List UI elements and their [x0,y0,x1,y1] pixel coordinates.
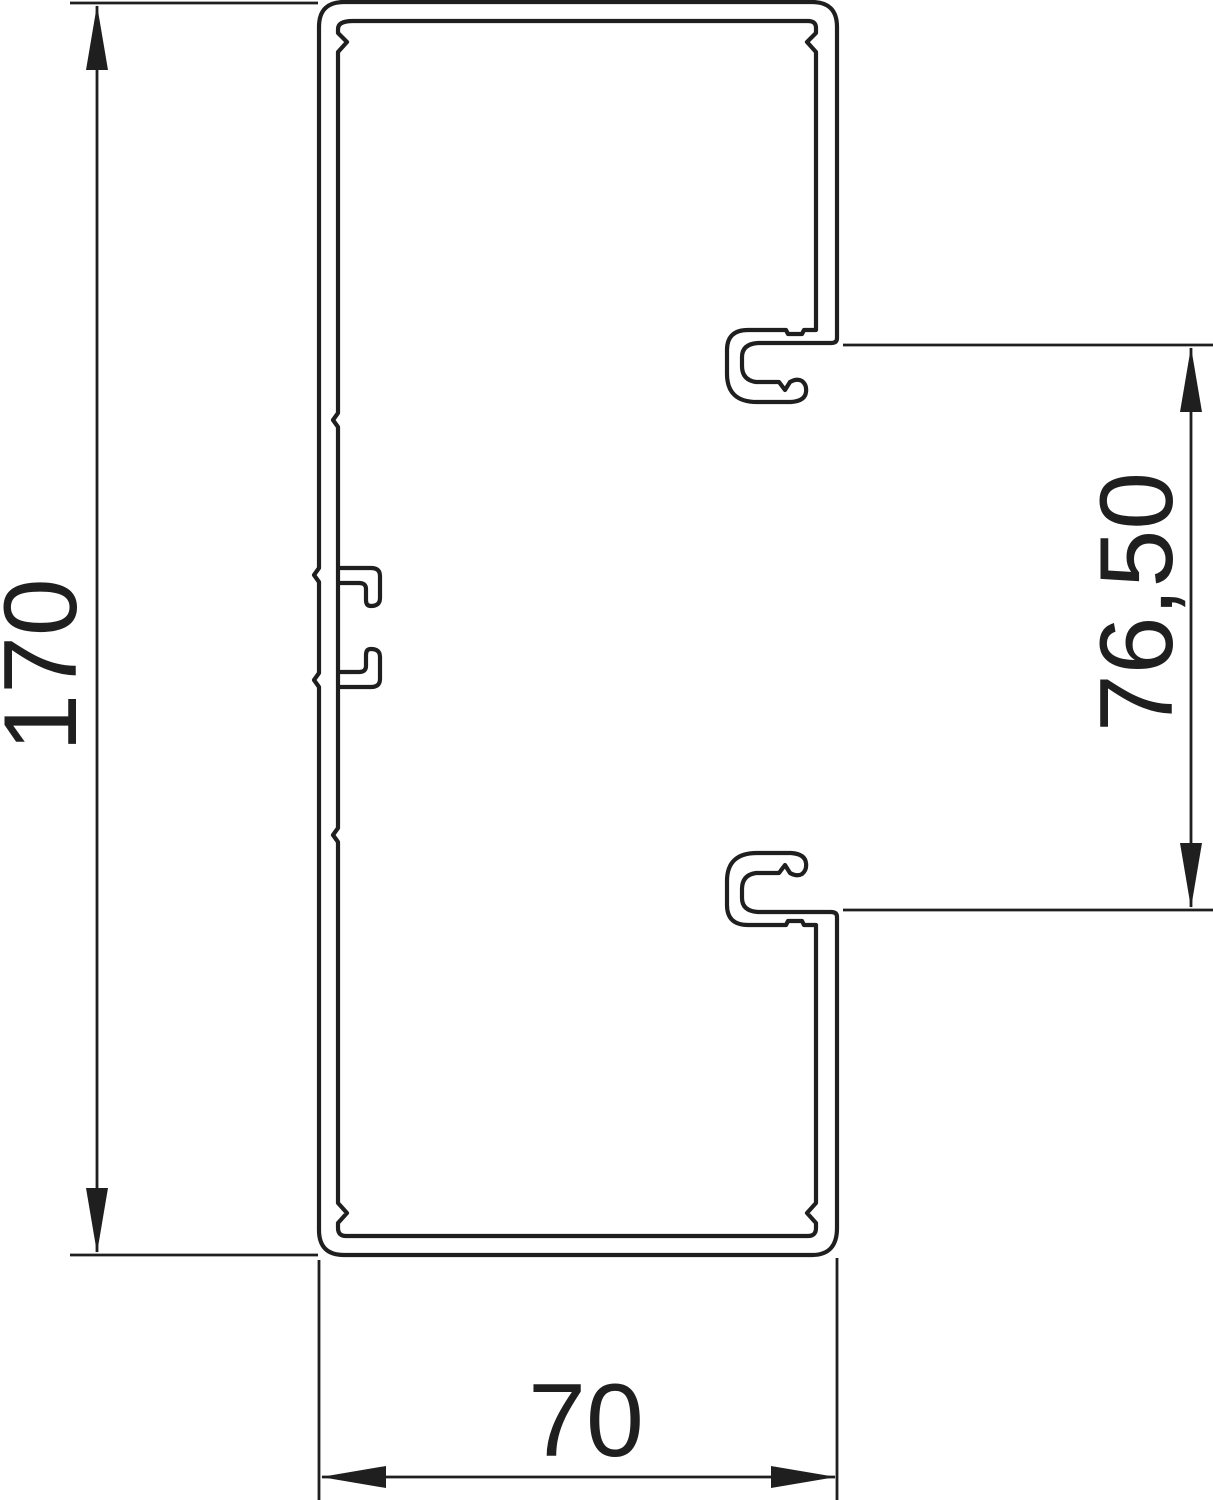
dimension-opening-height: 76,50 [843,345,1213,910]
arrowhead-up-icon [86,5,108,70]
dimension-overall-width: 70 [319,1258,837,1500]
arrowhead-left-icon [321,1466,386,1488]
dimension-overall-height: 170 [0,3,318,1255]
arrowhead-right-icon [771,1466,836,1488]
profile-outline [314,2,837,1255]
dimension-label-opening-height: 76,50 [1079,472,1195,732]
dimension-label-overall-height: 170 [0,578,99,752]
partition-clip-upper-tab [338,568,380,606]
dimension-label-overall-width: 70 [528,1363,644,1479]
profile-cross-section-svg: 170 76,50 70 [0,0,1213,1500]
technical-drawing: 170 76,50 70 [0,0,1213,1500]
arrowhead-down-icon [1180,843,1202,908]
profile-body-path [314,2,837,1255]
partition-clip-lower-tab [338,649,380,687]
arrowhead-down-icon [86,1188,108,1253]
arrowhead-up-icon [1180,347,1202,412]
